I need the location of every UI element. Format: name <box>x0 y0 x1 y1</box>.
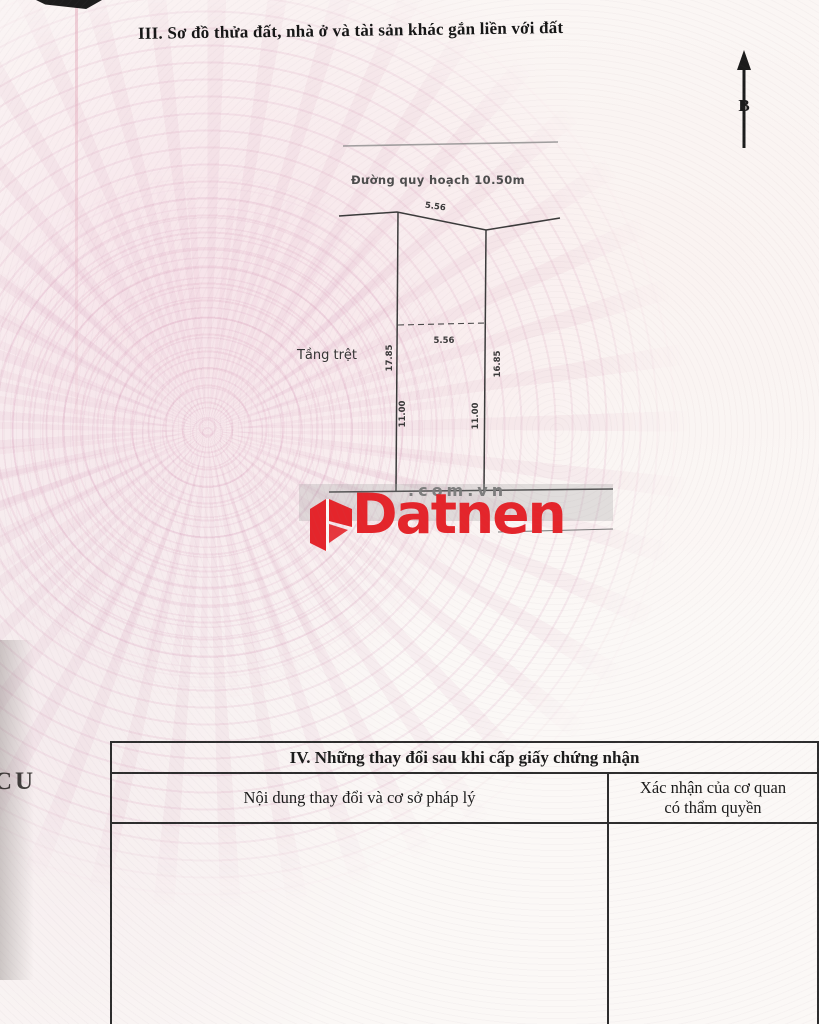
column-header-authority: Xác nhận của cơ quan có thẩm quyền <box>609 774 817 822</box>
road-line <box>343 142 558 146</box>
plot-inner-dashed-line <box>398 323 485 325</box>
section-iv-table: IV. Những thay đổi sau khi cấp giấy chứn… <box>110 741 819 1024</box>
dim-left-lower: 11.00 <box>398 400 408 427</box>
north-label: B <box>738 96 749 115</box>
certificate-page: III. Sơ đồ thửa đất, nhà ở và tài sản kh… <box>0 0 819 1024</box>
plot-right-edge <box>484 230 486 491</box>
table-header-row: Nội dung thay đổi và cơ sở pháp lý Xác n… <box>112 774 817 824</box>
table-cell-changes <box>112 824 609 1024</box>
edge-text-fragment: CU <box>0 768 36 796</box>
column-header-changes: Nội dung thay đổi và cơ sở pháp lý <box>112 774 609 822</box>
dim-inner-width: 5.56 <box>434 336 455 346</box>
column-header-authority-line2: có thẩm quyền <box>664 798 761 818</box>
table-cell-authority <box>609 824 817 1024</box>
dim-left-side: 17.85 <box>385 344 395 371</box>
plot-left-edge <box>396 212 398 491</box>
ground-floor-label: Tầng trệt <box>296 348 357 363</box>
north-arrow-icon: B <box>726 48 762 157</box>
plot-top-edge <box>339 212 560 230</box>
watermark-book-icon <box>302 491 358 560</box>
dim-right-lower: 11.00 <box>471 402 481 429</box>
fold-crease <box>75 0 78 540</box>
column-header-authority-line1: Xác nhận của cơ quan <box>640 778 786 798</box>
scan-edge-shadow <box>0 640 34 980</box>
watermark-brand: Datnen <box>352 487 565 542</box>
dim-front-width: 5.56 <box>424 201 446 214</box>
section-iv-title: IV. Những thay đổi sau khi cấp giấy chứn… <box>112 743 817 774</box>
dim-right-side: 16.85 <box>493 350 503 377</box>
road-label: Đường quy hoạch 10.50m <box>351 173 525 187</box>
table-body-row <box>112 824 817 1024</box>
